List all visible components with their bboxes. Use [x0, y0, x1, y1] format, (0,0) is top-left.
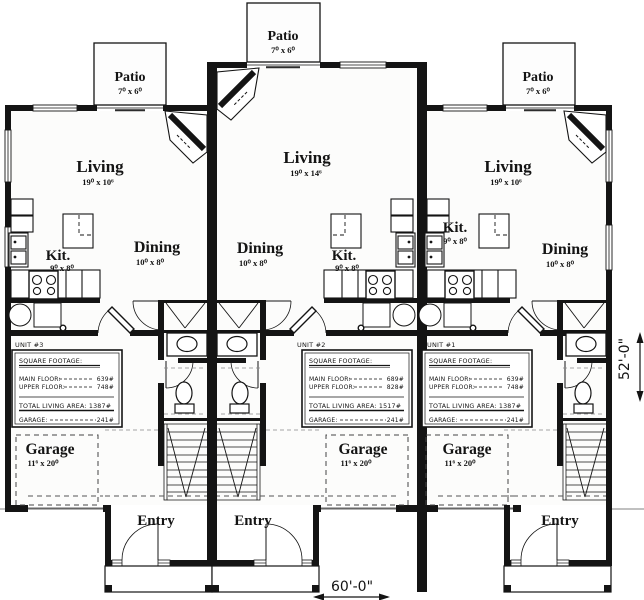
unit-2-garage-label: Garage [338, 441, 387, 458]
unit-2-name: UNIT #2 [297, 341, 326, 349]
unit-1-sqft-main-label: MAIN FLOOR: [429, 376, 471, 383]
unit-1-sqft-total: TOTAL LIVING AREA: 1387# [428, 403, 521, 410]
unit-2-entry-label: Entry [234, 513, 272, 529]
unit-2-sqft-garage-value: 241# [387, 417, 404, 424]
unit-2-sqft-main-value: 689# [387, 376, 404, 383]
unit-1-kitchen-label: Kit. [443, 220, 468, 236]
unit-2-sqft-upper-value: 828# [387, 384, 404, 391]
unit-2-sqft-heading: SQUARE FOOTAGE: [309, 358, 372, 365]
floor-plan-sheet: 60'-0" 52'-0" Patio 7⁰ x 6⁰ Living 19⁰ x… [0, 0, 644, 600]
unit-2-living-label: Living [283, 148, 331, 167]
dimension-depth-label: 52'-0" [617, 338, 633, 380]
unit-2-dining-dims: 10⁰ x 8⁰ [239, 258, 268, 268]
unit-3-garage-dims: 11⁶ x 20⁰ [28, 458, 60, 468]
dimension-width-label: 60'-0" [331, 579, 373, 595]
unit-3-patio-label: Patio [114, 70, 145, 85]
unit-3-kitchen-dims: 9⁰ x 8⁰ [50, 263, 74, 273]
unit-2-kitchen-dims: 9⁰ x 8⁰ [335, 263, 359, 273]
floor-plan-drawing: 60'-0" 52'-0" Patio 7⁰ x 6⁰ Living 19⁰ x… [0, 0, 644, 600]
unit-1-dining-dims: 10⁰ x 8⁰ [546, 259, 575, 269]
unit-3-living-dims: 19⁰ x 10⁶ [82, 177, 114, 187]
unit-1-patio-label: Patio [522, 70, 553, 85]
unit-2-patio-dims: 7⁰ x 6⁰ [271, 45, 295, 55]
unit-2-sqft-garage-label: GARAGE: [309, 417, 338, 424]
unit-1-sqft-garage-value: 241# [507, 417, 524, 424]
unit-1-sqft-garage-label: GARAGE: [429, 417, 458, 424]
unit-3-sqft-garage-value: 241# [97, 417, 114, 424]
unit-3-sqft-main-label: MAIN FLOOR: [19, 376, 61, 383]
unit-3-dining-label: Dining [134, 239, 180, 256]
unit-1-sqft-heading: SQUARE FOOTAGE: [429, 358, 492, 365]
unit-1-sqft-upper-value: 748# [507, 384, 524, 391]
unit-1-kitchen-dims: 9⁰ x 8⁰ [443, 236, 467, 246]
unit-3-name: UNIT #3 [15, 341, 44, 349]
unit-2-living-dims: 19⁰ x 14⁶ [290, 168, 322, 178]
unit-2-kitchen-label: Kit. [332, 248, 357, 264]
unit-3-sqft-total: TOTAL LIVING AREA: 1387# [18, 403, 111, 410]
unit-1-patio-dims: 7⁰ x 6⁰ [526, 86, 550, 96]
unit-2-patio-label: Patio [267, 29, 298, 44]
unit-3-sqft-main-value: 639# [97, 376, 114, 383]
unit-1-living-dims: 19⁰ x 10⁶ [490, 177, 522, 187]
unit-3-sqft-garage-label: GARAGE: [19, 417, 48, 424]
unit-3-sqft-upper-label: UPPER FLOOR: [19, 384, 65, 391]
unit-2-sqft-total: TOTAL LIVING AREA: 1517# [308, 403, 401, 410]
unit-3-sqft-heading: SQUARE FOOTAGE: [19, 358, 82, 365]
unit-1-entry-label: Entry [541, 513, 579, 529]
unit-2-sqft-main-label: MAIN FLOOR: [309, 376, 351, 383]
unit-2-garage-dims: 11⁶ x 20⁰ [341, 458, 373, 468]
unit-1-sqft-main-value: 639# [507, 376, 524, 383]
unit-2-sqft-upper-label: UPPER FLOOR: [309, 384, 355, 391]
unit-3-kitchen-label: Kit. [46, 248, 71, 264]
unit-3-dining-dims: 10⁰ x 8⁰ [136, 257, 165, 267]
unit-1-garage-dims: 11⁶ x 20⁰ [445, 458, 477, 468]
unit-3-sqft-upper-value: 748# [97, 384, 114, 391]
unit-2-dining-label: Dining [237, 240, 283, 257]
unit-3-living-label: Living [76, 157, 124, 176]
unit-3-garage-label: Garage [25, 441, 74, 458]
unit-3-patio-dims: 7⁰ x 6⁰ [118, 86, 142, 96]
unit-3-entry-label: Entry [137, 513, 175, 529]
unit-1-name: UNIT #1 [427, 341, 456, 349]
unit-1-living-label: Living [484, 157, 532, 176]
unit-1-garage-label: Garage [442, 441, 491, 458]
unit-1-sqft-upper-label: UPPER FLOOR: [429, 384, 475, 391]
unit-1-dining-label: Dining [542, 241, 588, 258]
